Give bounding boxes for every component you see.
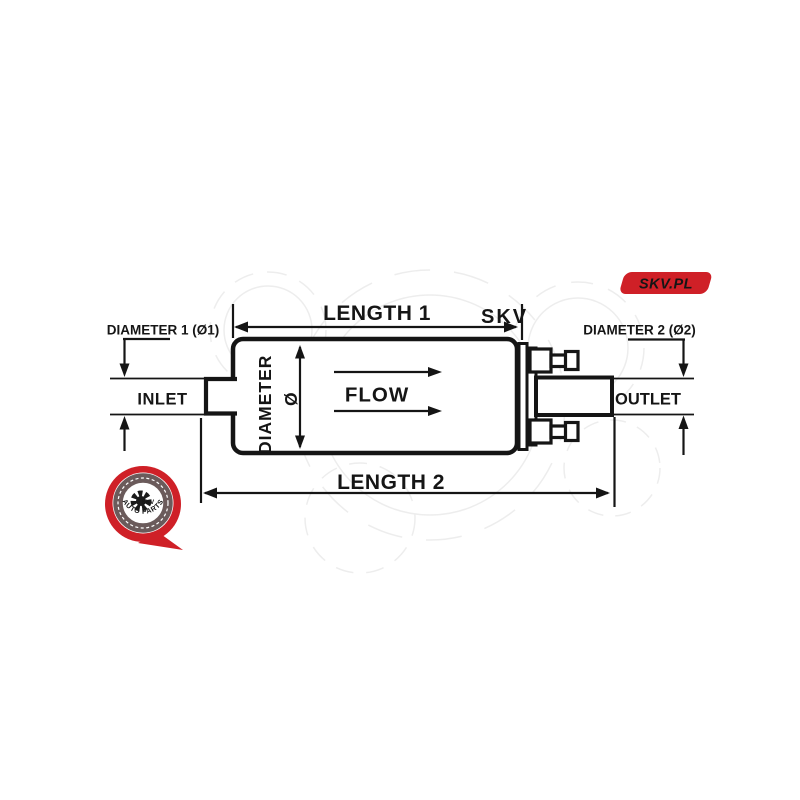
outlet-group: OUTLET xyxy=(612,379,694,415)
diameter1-label: DIAMETER 1 (Ø1) xyxy=(107,323,220,338)
diameter1-dimension: DIAMETER 1 (Ø1) xyxy=(107,323,220,452)
length1-left-arrow-icon xyxy=(234,322,248,333)
inlet-stub xyxy=(206,379,237,414)
outlet-tube xyxy=(536,378,612,416)
length2-right-arrow-icon xyxy=(596,488,610,499)
length2-label: LENGTH 2 xyxy=(337,471,445,494)
length1-label: LENGTH 1 xyxy=(323,302,431,325)
skv-logo: AUTO PARTS SKV xyxy=(105,466,183,550)
inlet-label: INLET xyxy=(137,391,187,409)
phi-rotated-label: Ø xyxy=(281,392,301,406)
skv-badge: SKV.PL xyxy=(619,272,713,294)
skv-badge-label: SKV.PL xyxy=(639,277,693,293)
diameter1-top-arrow-icon xyxy=(120,364,130,378)
flow-label: FLOW xyxy=(345,384,409,407)
inlet-group: INLET xyxy=(110,379,204,415)
diameter-rotated-label: DIAMETER xyxy=(255,355,275,454)
outlet-label: OUTLET xyxy=(615,391,681,409)
diameter1-bottom-arrow-icon xyxy=(120,416,130,430)
screenshot-root: SKV SKV LENGTH 1 LENGTH 2 DIAMETER 1 (Ø1… xyxy=(0,0,800,800)
fuel-pump-diagram: SKV SKV LENGTH 1 LENGTH 2 DIAMETER 1 (Ø1… xyxy=(0,0,800,800)
logo-center-label: SKV xyxy=(142,500,154,506)
length1-dimension: LENGTH 1 xyxy=(233,302,522,340)
length2-left-arrow-icon xyxy=(203,488,217,499)
terminal-bottom xyxy=(530,420,578,443)
diameter2-label: DIAMETER 2 (Ø2) xyxy=(583,323,696,338)
diameter2-bottom-arrow-icon xyxy=(679,416,689,430)
diameter2-top-arrow-icon xyxy=(679,364,689,378)
